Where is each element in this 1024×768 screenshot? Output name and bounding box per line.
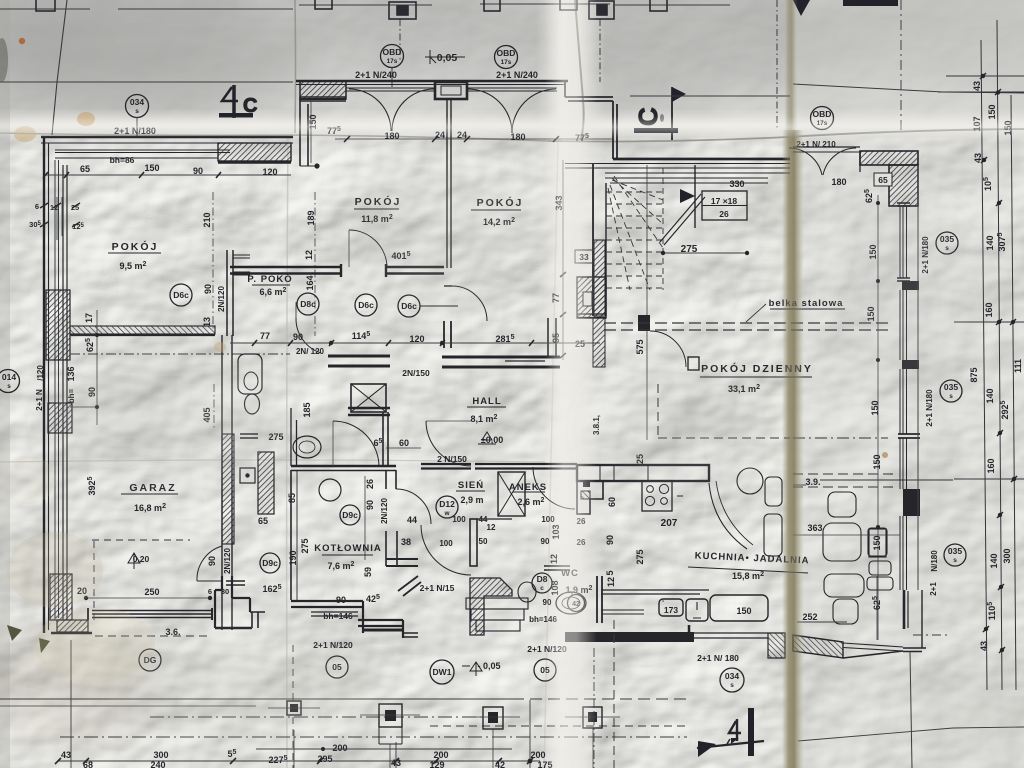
svg-text:240: 240 [150,760,165,768]
svg-text:8,1 m2: 8,1 m2 [471,414,498,424]
svg-text:300: 300 [153,750,168,760]
svg-text:207: 207 [661,518,678,529]
svg-text:3.9.: 3.9. [805,477,820,487]
svg-text:034: 034 [130,97,144,107]
svg-text:160: 160 [984,302,994,317]
svg-text:77: 77 [260,331,270,341]
svg-text:s: s [953,557,957,564]
svg-text:D9c: D9c [262,558,278,568]
svg-text:250: 250 [144,587,159,597]
svg-text:12: 12 [487,523,496,532]
svg-text:129: 129 [429,760,444,768]
svg-text:HALL: HALL [472,396,501,407]
svg-text:275: 275 [681,244,698,255]
svg-text:2,6 m2: 2,6 m2 [518,497,545,507]
svg-text:6: 6 [208,587,212,596]
svg-text:275: 275 [635,549,645,564]
svg-text:P. POKÓ: P. POKÓ [247,273,292,285]
svg-text:60: 60 [607,497,617,507]
svg-text:12: 12 [304,250,314,260]
svg-text:65: 65 [80,164,90,174]
svg-text:7,6 m2: 7,6 m2 [328,561,355,571]
svg-text:2+1 N/120: 2+1 N/120 [313,640,353,650]
svg-text:2,9 m: 2,9 m [460,495,483,505]
svg-text:26: 26 [365,479,375,489]
svg-text:2+1 N/180: 2+1 N/180 [925,389,934,427]
svg-text:150: 150 [872,535,882,550]
svg-text:17: 17 [84,313,94,323]
svg-text:50: 50 [479,537,488,546]
svg-text:300: 300 [1002,548,1012,563]
svg-text:2+1 N: 2+1 N [35,389,44,411]
svg-text:035: 035 [948,546,962,556]
svg-text:60: 60 [399,438,409,448]
svg-text:17s: 17s [501,59,512,66]
svg-text:2+1: 2+1 [929,582,938,596]
svg-text:5: 5 [605,570,615,575]
svg-text:30: 30 [221,587,229,596]
svg-text:65: 65 [258,516,268,526]
svg-text:275: 275 [300,538,310,553]
svg-text:s: s [135,108,139,115]
svg-text:25: 25 [71,203,79,212]
svg-text:2N/120: 2N/120 [223,548,232,574]
svg-text:100: 100 [439,539,453,548]
svg-text:15,8 m2: 15,8 m2 [732,571,764,581]
svg-text:90: 90 [336,595,346,605]
svg-text:180: 180 [831,177,846,187]
svg-text:OBD: OBD [383,47,402,57]
svg-text:295: 295 [317,754,332,764]
svg-text:575: 575 [635,339,645,354]
svg-text:6: 6 [35,202,39,211]
svg-text:D12: D12 [439,499,455,509]
svg-text:164: 164 [305,275,315,290]
svg-text:875: 875 [969,367,979,382]
svg-text:252: 252 [802,612,817,622]
svg-text:D9c: D9c [342,510,358,520]
svg-text:210: 210 [202,212,212,227]
svg-text:POKÓJ: POKÓJ [112,240,159,253]
svg-text:140: 140 [985,388,995,403]
svg-text:200: 200 [332,743,347,753]
svg-text:12: 12 [606,577,616,587]
svg-text:140: 140 [989,553,999,568]
svg-text:2N/120: 2N/120 [380,498,389,524]
svg-text:C: C [243,95,257,117]
svg-text:17s: 17s [387,58,398,65]
svg-text:2 N/150: 2 N/150 [437,454,467,464]
svg-text:2+1 N/ 180: 2+1 N/ 180 [697,653,739,663]
svg-text:150: 150 [144,163,159,173]
svg-text:GARAZ: GARAZ [129,482,176,494]
svg-text:2N/120: 2N/120 [217,286,226,312]
svg-text:185: 185 [302,402,312,417]
svg-text:160: 160 [986,458,996,473]
svg-text:43: 43 [972,81,982,91]
svg-text:65: 65 [878,175,888,185]
svg-text:c: c [540,585,544,592]
svg-text:s: s [730,682,734,689]
svg-text:200: 200 [530,750,545,760]
svg-text:13: 13 [202,317,212,327]
svg-text:42: 42 [495,760,505,768]
svg-text:KOTŁOWNIA: KOTŁOWNIA [314,543,382,554]
svg-text:bh=86: bh=86 [110,155,135,165]
svg-text:90: 90 [605,535,615,545]
svg-text:034: 034 [725,671,739,681]
svg-text:38: 38 [401,537,411,547]
svg-text:N/180: N/180 [930,550,939,572]
svg-text:26: 26 [719,209,729,219]
svg-text:100: 100 [452,515,466,524]
svg-text:bh=146: bh=146 [323,611,353,621]
svg-text:90: 90 [203,284,213,294]
svg-text:/120: /120 [36,365,45,381]
svg-text:43: 43 [979,641,989,651]
svg-text:s: s [7,383,11,390]
svg-text:44: 44 [407,515,417,525]
svg-text:150: 150 [736,606,751,616]
svg-text:17 ×18: 17 ×18 [711,196,738,206]
svg-text:DW1: DW1 [433,667,452,677]
svg-text:s: s [949,393,953,400]
svg-text:85: 85 [287,493,297,503]
svg-text:43: 43 [391,758,401,768]
svg-text:59: 59 [363,567,373,577]
svg-text:2+1 N/240: 2+1 N/240 [496,70,538,80]
svg-text:SIEŃ: SIEŃ [458,480,484,491]
svg-text:136: 136 [66,366,76,381]
svg-text:w: w [443,510,450,517]
svg-text:111: 111 [1013,359,1023,373]
svg-text:120: 120 [262,167,277,177]
svg-text:190: 190 [288,550,298,565]
svg-text:140: 140 [985,235,995,250]
svg-text:90: 90 [193,166,203,176]
svg-text:035: 035 [944,382,958,392]
svg-text:43: 43 [973,153,983,163]
svg-text:90: 90 [365,500,375,510]
svg-text:90: 90 [293,332,303,342]
svg-text:9,5 m2: 9,5 m2 [120,261,147,271]
svg-text:12: 12 [50,203,58,212]
svg-text:3.6.: 3.6. [165,627,180,637]
svg-text:014: 014 [2,372,16,382]
svg-text:150: 150 [870,400,880,415]
svg-text:68: 68 [83,760,93,768]
svg-text:2+1 N/15: 2+1 N/15 [420,583,455,593]
svg-text:2N/ 120: 2N/ 120 [296,347,325,356]
svg-text:120: 120 [409,334,424,344]
svg-text:D6c: D6c [358,300,374,310]
svg-text:90: 90 [207,556,217,566]
svg-text:D6c: D6c [401,301,417,311]
svg-text:2+1 N/240: 2+1 N/240 [355,70,397,80]
svg-text:150: 150 [872,454,882,469]
svg-text:43: 43 [61,750,71,760]
svg-text:330: 330 [729,179,744,189]
svg-text:173: 173 [664,605,678,615]
svg-text:OBD: OBD [497,48,516,58]
svg-text:189: 189 [306,210,316,225]
svg-text:0,05: 0,05 [437,52,458,64]
svg-text:16,8 m2: 16,8 m2 [134,503,166,513]
svg-text:200: 200 [433,750,448,760]
svg-text:ANEKS: ANEKS [509,482,547,493]
svg-text:0,20: 0,20 [133,554,150,564]
svg-text:D6c: D6c [173,290,189,300]
svg-text:363: 363 [807,523,822,533]
svg-text:2N/150: 2N/150 [402,368,430,378]
svg-text:6,6 m2: 6,6 m2 [260,287,287,297]
svg-text:D8c: D8c [300,299,316,309]
